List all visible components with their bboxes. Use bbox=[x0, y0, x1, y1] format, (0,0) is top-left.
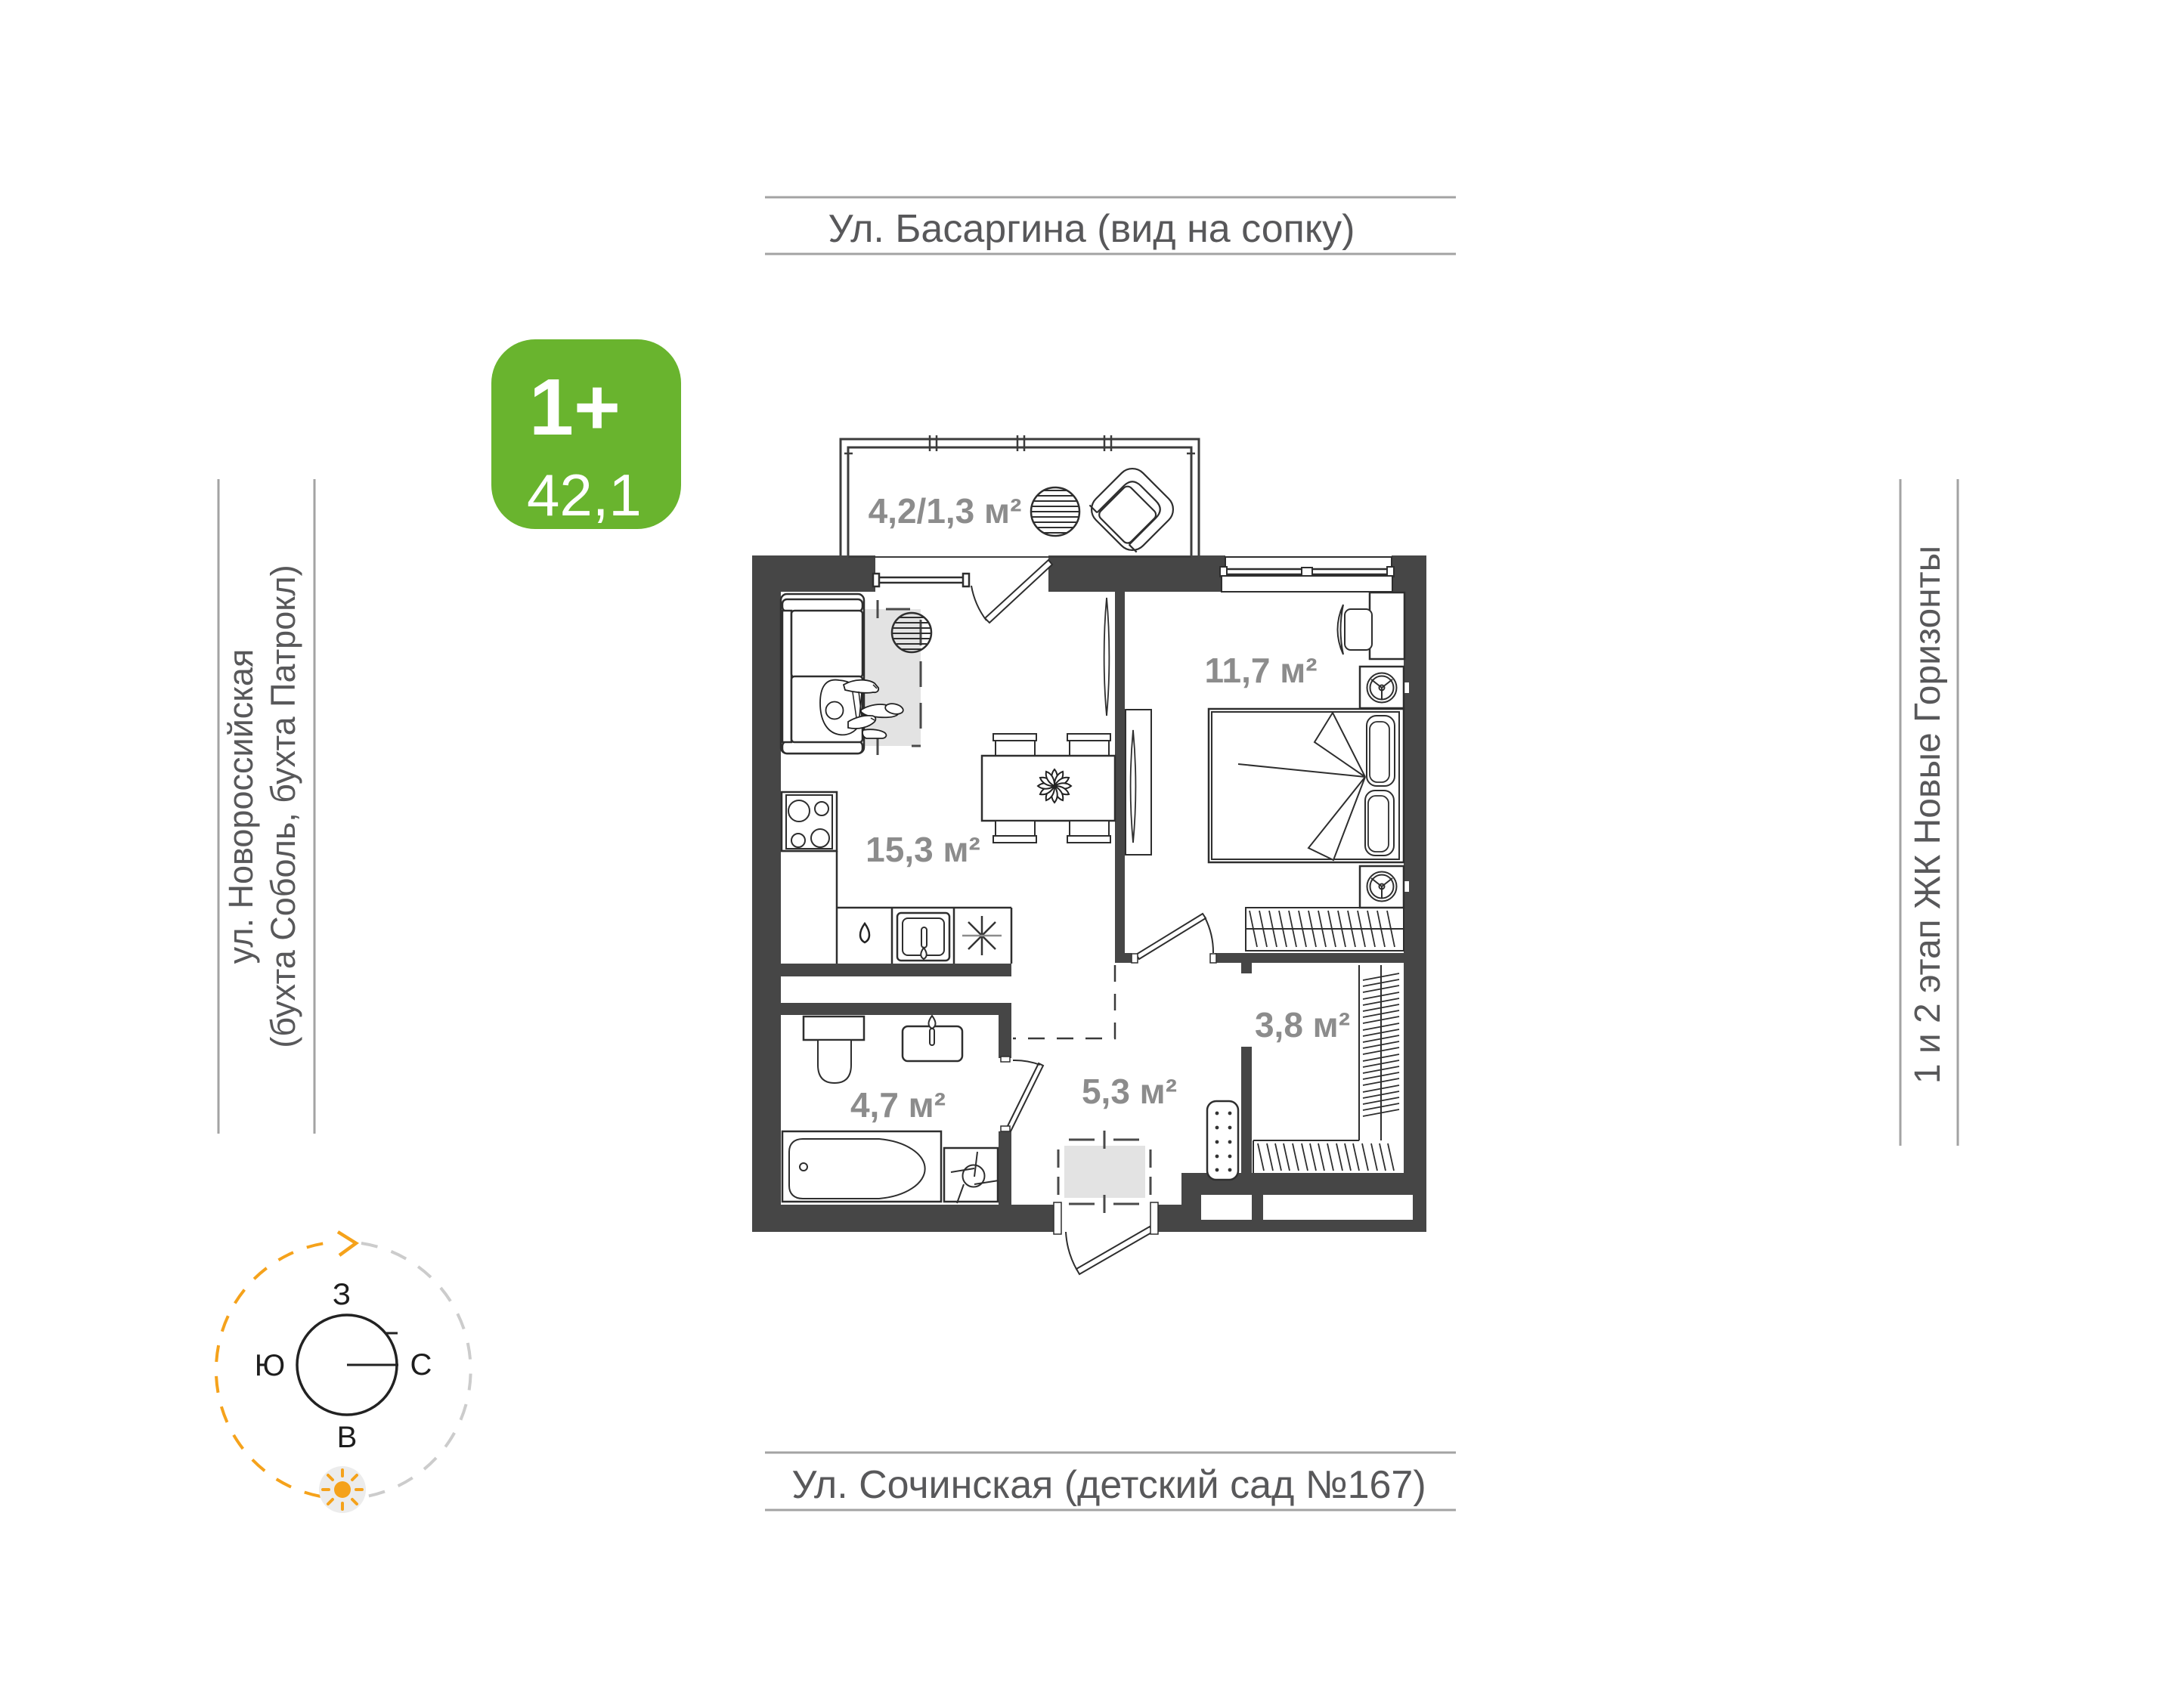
svg-text:1 и 2 этап ЖК Новые Горизонты: 1 и 2 этап ЖК Новые Горизонты bbox=[1908, 546, 1948, 1084]
svg-text:З: З bbox=[333, 1278, 351, 1311]
svg-text:4,7 м²: 4,7 м² bbox=[850, 1085, 946, 1125]
svg-text:(бухта Соболь, бухта Патрокл): (бухта Соболь, бухта Патрокл) bbox=[264, 565, 302, 1047]
svg-text:Ул. Басаргина (вид на сопку): Ул. Басаргина (вид на сопку) bbox=[828, 207, 1355, 251]
svg-text:15,3 м²: 15,3 м² bbox=[866, 830, 980, 869]
svg-text:3,8 м²: 3,8 м² bbox=[1255, 1005, 1350, 1044]
svg-text:4,2/1,3 м²: 4,2/1,3 м² bbox=[869, 491, 1022, 531]
svg-text:В: В bbox=[337, 1421, 358, 1454]
svg-text:42,1: 42,1 bbox=[527, 462, 642, 528]
svg-text:5,3 м²: 5,3 м² bbox=[1082, 1072, 1177, 1111]
svg-text:11,7 м²: 11,7 м² bbox=[1204, 651, 1317, 690]
svg-text:С: С bbox=[410, 1348, 432, 1382]
svg-text:ул. Новороссийская: ул. Новороссийская bbox=[221, 649, 260, 964]
svg-text:Ул. Сочинская (детский сад №16: Ул. Сочинская (детский сад №167) bbox=[791, 1463, 1426, 1507]
svg-text:1+: 1+ bbox=[529, 363, 621, 452]
svg-text:Ю: Ю bbox=[255, 1349, 285, 1382]
